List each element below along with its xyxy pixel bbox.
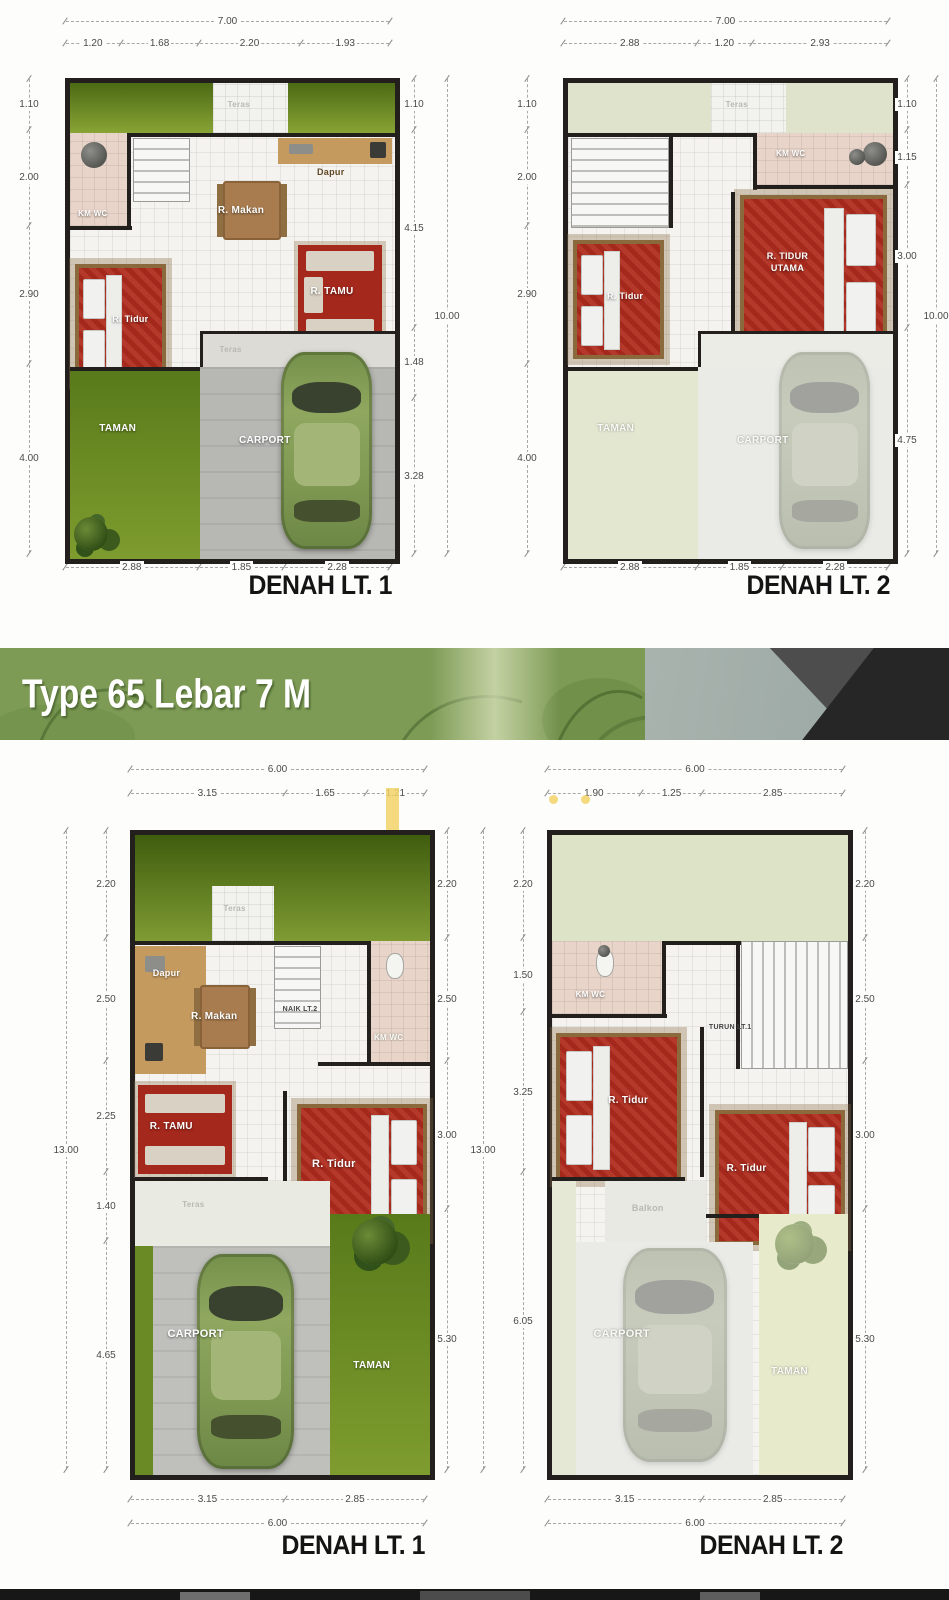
dim-label: 1.15 [895, 151, 918, 164]
bedroom-label: R. Tidur [607, 291, 643, 301]
dim-label: 2.90 [17, 288, 40, 301]
wall [662, 941, 666, 1015]
banner: Type 65 Lebar 7 M [0, 648, 949, 740]
bed-pillow [808, 1127, 834, 1172]
dim-label: 2.93 [808, 37, 831, 50]
dim-label: 3.00 [435, 1129, 458, 1142]
washbasin-icon [863, 142, 887, 166]
dim-label: 10.00 [921, 310, 949, 323]
bed-sheet [106, 275, 121, 375]
dim-segment: 1.10 [396, 78, 432, 130]
dim-label: 3.25 [511, 1086, 534, 1099]
dim-label: 1.20 [713, 37, 736, 50]
teras-area [212, 886, 274, 940]
dim-segment: 3.28 [396, 398, 432, 554]
car-windshield [635, 1280, 714, 1314]
dining-label: R. Makan [218, 205, 264, 216]
dim-segment: 2.88 [563, 36, 697, 50]
dim-label: 1.25 [660, 787, 683, 800]
footer-fragment [420, 1591, 530, 1600]
dim-segment: 2.90 [8, 226, 50, 364]
plan3-top-total-rail: 6.00 [130, 762, 425, 776]
dim-segment: 6.00 [130, 762, 425, 776]
dim-label: 4.65 [94, 1349, 117, 1362]
dim-label: 2.20 [511, 878, 534, 891]
car-ghost [623, 1248, 727, 1462]
stairs [571, 138, 669, 228]
dim-segment: 2.85 [285, 1492, 425, 1506]
dim-segment: 3.15 [130, 786, 285, 800]
dim-label: 2.50 [94, 993, 117, 1006]
stairs [133, 138, 190, 202]
dim-label: 2.25 [94, 1110, 117, 1123]
teras-mid-label: Teras [182, 1200, 204, 1209]
plan3-left-total-rail: 13.00 [46, 830, 86, 1470]
dim-label: 1.20 [81, 37, 104, 50]
garden-edge [552, 1181, 576, 1475]
taman-area [70, 371, 200, 559]
bed-pillow [581, 255, 603, 295]
dim-segment: 4.00 [506, 364, 548, 554]
dim-segment: 13.00 [46, 830, 86, 1470]
dim-segment: 2.85 [702, 786, 843, 800]
wall [700, 1027, 704, 1177]
dim-label: 4.00 [515, 452, 538, 465]
plan1-right-total-rail: 10.00 [432, 78, 462, 554]
dim-label: 7.00 [216, 15, 239, 28]
plan4-top-dims-rail: 1.901.252.85 [547, 786, 843, 800]
plan2-title: DENAH LT. 2 [684, 570, 890, 601]
dim-segment: 1.10 [506, 78, 548, 130]
plan2-left-dims-rail: 1.102.002.904.00 [506, 78, 548, 554]
bed-pillow [566, 1115, 591, 1164]
plant-icon [74, 517, 108, 551]
bedroom-label: R. Tidur [608, 1095, 648, 1106]
wall [70, 226, 132, 230]
dim-label: 13.00 [468, 1144, 497, 1157]
cropped-footer-strip [0, 1589, 949, 1600]
dim-segment: 2.00 [506, 130, 548, 225]
dim-segment: 6.05 [503, 1172, 543, 1470]
bed-sheet [824, 208, 844, 341]
bed-pillow [846, 282, 876, 335]
bed [556, 1033, 680, 1180]
dim-label: 2.88 [618, 561, 641, 574]
plan4-bottom-dims-rail: 3.152.85 [547, 1492, 843, 1506]
plan1-title: DENAH LT. 1 [186, 570, 392, 601]
dim-label: 7.00 [714, 15, 737, 28]
carport-label: CARPORT [239, 435, 291, 446]
dim-label: 1.10 [402, 98, 425, 111]
dim-segment: 2.85 [702, 1492, 843, 1506]
plan3-top-dims-rail: 3.151.651.21 [130, 786, 425, 800]
sink-icon [289, 144, 313, 154]
teras-area [711, 83, 786, 133]
dim-label: 2.20 [94, 878, 117, 891]
dim-label: 2.85 [761, 787, 784, 800]
dim-label: 1.50 [511, 969, 534, 982]
plan2-top-total-rail: 7.00 [563, 14, 888, 28]
dim-label: 2.88 [120, 561, 143, 574]
kitchen-counter [135, 946, 206, 1074]
washbasin-icon [81, 142, 107, 168]
dim-segment: 3.15 [130, 1492, 285, 1506]
dim-segment: 7.00 [563, 14, 888, 28]
bed-sheet [371, 1115, 389, 1228]
dim-label: 6.00 [266, 763, 289, 776]
dim-segment: 6.00 [547, 1516, 843, 1530]
bedroom-label: R. Tidur [312, 1158, 356, 1170]
dim-segment: 3.25 [503, 1012, 543, 1172]
dim-segment: 2.20 [86, 830, 126, 938]
teras-area [213, 83, 288, 133]
dim-label: 3.00 [895, 250, 918, 263]
taman-label: TAMAN [99, 423, 136, 434]
dim-label: 2.85 [761, 1493, 784, 1506]
dim-segment: 2.50 [86, 938, 126, 1061]
dim-label: 1.40 [94, 1200, 117, 1213]
dim-label: 1.93 [334, 37, 357, 50]
bed-pillow [83, 279, 105, 319]
dim-label: 3.15 [613, 1493, 636, 1506]
plan4-title: DENAH LT. 2 [636, 1530, 843, 1561]
car-rear-window [792, 500, 858, 522]
plan3-floorplan: Teras Dapur R. Makan NAIK LT.2 KM WC R. … [130, 830, 435, 1480]
wall [367, 941, 371, 1066]
wall [127, 133, 131, 228]
bed-pillow [83, 330, 105, 370]
plan4-bottom-total-rail: 6.00 [547, 1516, 843, 1530]
teras-label: Teras [224, 904, 246, 913]
plan1-right-dims-rail: 1.104.151.483.28 [396, 78, 432, 554]
dim-label: 2.50 [435, 993, 458, 1006]
car [197, 1254, 294, 1468]
dim-label: 6.00 [683, 1517, 706, 1530]
plan2-right-total-rail: 10.00 [923, 78, 949, 554]
wall [736, 941, 740, 1069]
dim-segment: 10.00 [432, 78, 462, 554]
plan4-top-total-rail: 6.00 [547, 762, 843, 776]
dim-label: 1.85 [728, 561, 751, 574]
stove-icon [370, 142, 386, 158]
plan4-left-total-rail: 13.00 [463, 830, 503, 1470]
bedroom-label: R. Tidur [112, 314, 148, 324]
living-label: R. TAMU [150, 1121, 193, 1132]
balkon-label: Balkon [632, 1203, 664, 1213]
dining-label: R. Makan [191, 1011, 237, 1022]
stairs-down-label: TURUN LT.1 [709, 1024, 752, 1031]
dim-label: 3.28 [402, 470, 425, 483]
dim-label: 2.20 [238, 37, 261, 50]
sofa-seat [306, 251, 374, 271]
plan1-top-total-rail: 7.00 [65, 14, 390, 28]
carport-label: CARPORT [737, 435, 789, 446]
dim-segment: 13.00 [463, 830, 503, 1470]
kitchen-label: Dapur [153, 968, 181, 978]
dim-label: 2.85 [343, 1493, 366, 1506]
dim-label: 2.20 [853, 878, 876, 891]
bed-sheet [593, 1046, 610, 1170]
garden-strip [552, 835, 848, 941]
garden-edge [135, 1246, 153, 1475]
dim-segment: 2.20 [503, 830, 543, 938]
dim-label: 6.00 [266, 1517, 289, 1530]
highlight-mark [581, 795, 590, 804]
bathroom-area [753, 133, 893, 185]
plan2-floorplan: Teras KM WC R. Tidur R. TIDUR UTAMA [563, 78, 898, 564]
car-roof [294, 423, 360, 486]
car-rear-window [294, 500, 360, 522]
bed-pillow [581, 306, 603, 346]
dim-label: 3.15 [196, 1493, 219, 1506]
sofa-seat [145, 1146, 224, 1166]
kitchen-label: Dapur [317, 167, 345, 177]
car-rear-window [638, 1409, 713, 1433]
dim-label: 5.30 [435, 1333, 458, 1346]
dim-label: 4.75 [895, 434, 918, 447]
dim-label: 1.48 [402, 356, 425, 369]
dim-label: 2.20 [435, 878, 458, 891]
plan1-left-dims-rail: 1.102.002.904.00 [8, 78, 50, 554]
dim-segment: 1.20 [65, 36, 121, 50]
teras-mid-area [135, 1181, 330, 1246]
floor-plan-brochure: 7.00 1.201.682.201.93 1.102.002.904.00 1… [0, 0, 949, 1600]
banner-title: Type 65 Lebar 7 M [22, 671, 311, 718]
highlight-mark [549, 795, 558, 804]
dim-segment: 1.25 [641, 786, 703, 800]
dim-segment: 2.90 [506, 226, 548, 364]
dim-segment: 6.00 [547, 762, 843, 776]
dim-label: 2.90 [515, 288, 538, 301]
dim-label: 6.00 [683, 763, 706, 776]
dim-segment: 10.00 [923, 78, 949, 554]
car-windshield [292, 382, 361, 414]
bathroom-label: KM WC [78, 209, 108, 218]
washbasin-icon [598, 945, 610, 957]
highlight-mark [386, 788, 399, 830]
dim-label: 1.85 [230, 561, 253, 574]
bathroom-label: KM WC [576, 990, 606, 999]
dim-segment: 1.65 [285, 786, 366, 800]
dim-segment: 1.68 [121, 36, 199, 50]
dim-segment: 1.48 [396, 328, 432, 398]
dim-label: 3.15 [196, 787, 219, 800]
living-label: R. TAMU [311, 286, 354, 297]
dim-label: 1.65 [313, 787, 336, 800]
bathroom-area [367, 941, 430, 1066]
teras-label: Teras [726, 100, 748, 109]
master-bedroom-label: R. TIDUR UTAMA [757, 250, 819, 274]
dim-label: 2.50 [853, 993, 876, 1006]
taman-label: TAMAN [353, 1360, 390, 1371]
wall [552, 1014, 667, 1018]
dim-label: 10.00 [432, 310, 461, 323]
dim-label: 4.15 [402, 222, 425, 235]
car-roof [211, 1331, 281, 1400]
palm-tree-icon [352, 1219, 398, 1265]
car-windshield [209, 1286, 283, 1320]
dim-label: 6.05 [511, 1315, 534, 1328]
plan2-top-dims-rail: 2.881.202.93 [563, 36, 888, 50]
dim-segment: 2.25 [86, 1061, 126, 1172]
dim-segment: 4.65 [86, 1241, 126, 1470]
dim-segment: 1.50 [503, 938, 543, 1012]
sofa-seat [145, 1094, 224, 1114]
dim-segment: 2.00 [8, 130, 50, 225]
plan1-floorplan: Teras KM WC Dapur R. Makan R. TAMU R. Ti… [65, 78, 400, 564]
taman-label: TAMAN [771, 1366, 808, 1377]
plan1-top-dims-rail: 1.201.682.201.93 [65, 36, 390, 50]
palm-tree-icon [775, 1224, 815, 1264]
bed-pillow [566, 1051, 591, 1100]
car-rear-window [211, 1415, 281, 1439]
dim-segment: 4.00 [8, 364, 50, 554]
taman-label: TAMAN [597, 423, 634, 434]
stairs [274, 946, 321, 1029]
bedroom-label: R. Tidur [727, 1163, 767, 1174]
dim-segment: 2.93 [752, 36, 888, 50]
dim-segment: 1.40 [86, 1172, 126, 1241]
dim-label: 1.10 [895, 98, 918, 111]
car-roof [792, 423, 858, 486]
footer-fragment [700, 1592, 760, 1600]
wall [753, 185, 893, 189]
bathroom-label: KM WC [776, 149, 806, 158]
dim-segment: 1.20 [697, 36, 753, 50]
dim-label: 5.30 [853, 1333, 876, 1346]
dim-segment: 2.20 [199, 36, 301, 50]
banner-light-band [430, 648, 560, 740]
dim-segment: 1.93 [301, 36, 390, 50]
dim-label: 4.00 [17, 452, 40, 465]
wall [753, 133, 757, 190]
footer-fragment [180, 1592, 250, 1600]
plan3-bottom-dims-rail: 3.152.85 [130, 1492, 425, 1506]
dim-segment: 4.15 [396, 130, 432, 327]
stairs-up-label: NAIK LT.2 [278, 1005, 322, 1014]
stairs [741, 941, 848, 1069]
car-windshield [790, 382, 859, 414]
plan4-floorplan: KM WC TURUN LT.1 R. Tidur R. Tidur Balko… [547, 830, 853, 1480]
plan3-title: DENAH LT. 1 [218, 1530, 425, 1561]
bed-pillow [846, 214, 876, 267]
teras-mid-label: Teras [220, 345, 242, 354]
car-ghost [779, 352, 870, 550]
bathroom-area [552, 941, 662, 1015]
dim-segment: 6.00 [130, 1516, 425, 1530]
garden-strip [135, 835, 430, 941]
dim-label: 2.00 [17, 171, 40, 184]
toilet-icon [386, 953, 404, 979]
plan4-left-dims-rail: 2.201.503.256.05 [503, 830, 543, 1470]
bathroom-label: KM WC [374, 1033, 404, 1042]
taman-area [330, 1214, 430, 1475]
washbasin-icon [849, 149, 865, 165]
plan3-left-dims-rail: 2.202.502.251.404.65 [86, 830, 126, 1470]
teras-label: Teras [228, 100, 250, 109]
plan3-bottom-total-rail: 6.00 [130, 1516, 425, 1530]
dim-segment: 1.10 [8, 78, 50, 130]
dim-segment: 3.15 [547, 1492, 702, 1506]
dim-label: 1.10 [17, 98, 40, 111]
wall [318, 1062, 430, 1066]
taman-area [568, 371, 698, 559]
kitchen-counter [278, 138, 392, 164]
dim-label: 13.00 [51, 1144, 80, 1157]
dim-segment: 1.90 [547, 786, 641, 800]
bed-pillow [391, 1120, 417, 1165]
stove-icon [145, 1043, 163, 1061]
dim-label: 2.28 [823, 561, 846, 574]
wall [669, 133, 673, 228]
carport-label: CARPORT [593, 1328, 650, 1340]
dim-label: 2.28 [325, 561, 348, 574]
dim-label: 3.00 [853, 1129, 876, 1142]
dim-label: 2.88 [618, 37, 641, 50]
dim-label: 1.68 [148, 37, 171, 50]
carport-label: CARPORT [167, 1328, 224, 1340]
dim-segment: 7.00 [65, 14, 390, 28]
taman-area [759, 1214, 848, 1475]
dim-label: 1.10 [515, 98, 538, 111]
car [281, 352, 372, 550]
dim-label: 2.00 [515, 171, 538, 184]
